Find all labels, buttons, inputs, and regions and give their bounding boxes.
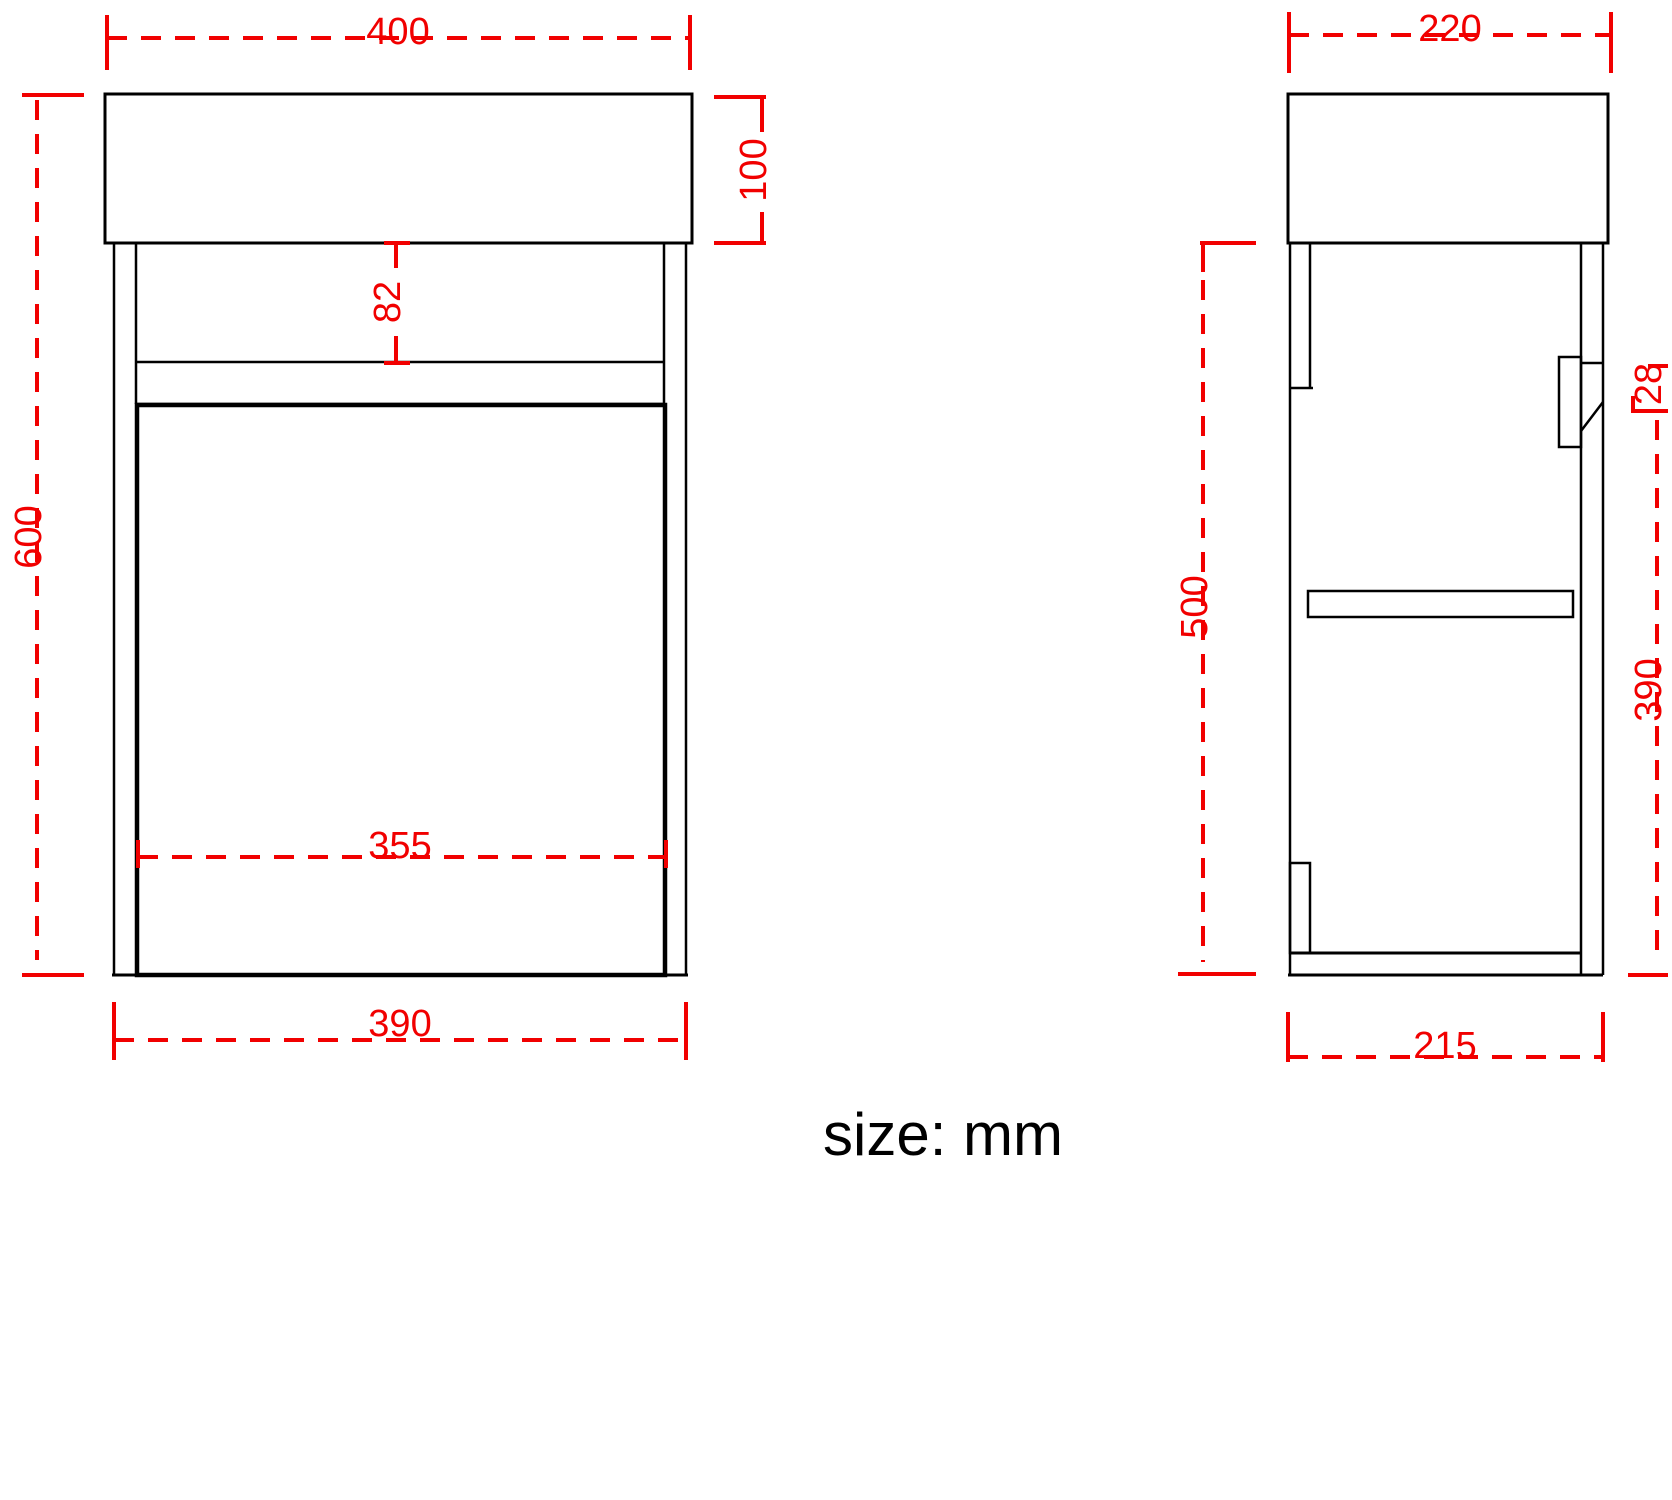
dim-label-front-apron-height: 82	[367, 281, 409, 323]
dim-label-side-top-depth: 220	[1418, 8, 1481, 50]
side-dimension-ticks	[1178, 12, 1668, 1062]
drawing-page: 400 100 82 600 355 390 220 28 500 390 21…	[0, 0, 1672, 1500]
side-back-bottom-strip	[1290, 863, 1310, 953]
dim-label-side-cabinet-depth: 215	[1413, 1025, 1476, 1067]
dim-label-front-door-width: 355	[368, 825, 431, 867]
side-handle-block	[1559, 357, 1581, 447]
dim-label-front-cabinet-width: 390	[368, 1003, 431, 1045]
dimension-labels: 400 100 82 600 355 390 220 28 500 390 21…	[8, 8, 1670, 1067]
dimension-lines	[22, 12, 1668, 1062]
front-basin-outline	[105, 94, 692, 243]
dim-label-side-handle-recess: 28	[1628, 363, 1670, 405]
side-front-panel-lines	[1581, 243, 1603, 975]
dim-label-front-overall-height: 600	[8, 505, 50, 568]
dim-label-front-top-width: 400	[366, 11, 429, 53]
side-shelf	[1308, 591, 1573, 617]
side-basin-outline	[1288, 94, 1608, 243]
units-note: size: mm	[823, 1101, 1063, 1168]
front-door-outline	[137, 405, 665, 975]
technical-drawing: 400 100 82 600 355 390 220 28 500 390 21…	[0, 0, 1672, 1500]
side-bottom-edges	[1288, 953, 1603, 975]
dim-label-side-cabinet-height: 500	[1174, 575, 1216, 638]
dim-label-front-top-height: 100	[733, 138, 775, 201]
front-apron-rail-lines	[136, 362, 664, 404]
dim-label-side-door-height: 390	[1628, 658, 1670, 721]
front-dimension-ticks	[22, 15, 766, 1060]
side-handle-notch-lines	[1581, 363, 1603, 431]
side-view	[1288, 94, 1608, 975]
